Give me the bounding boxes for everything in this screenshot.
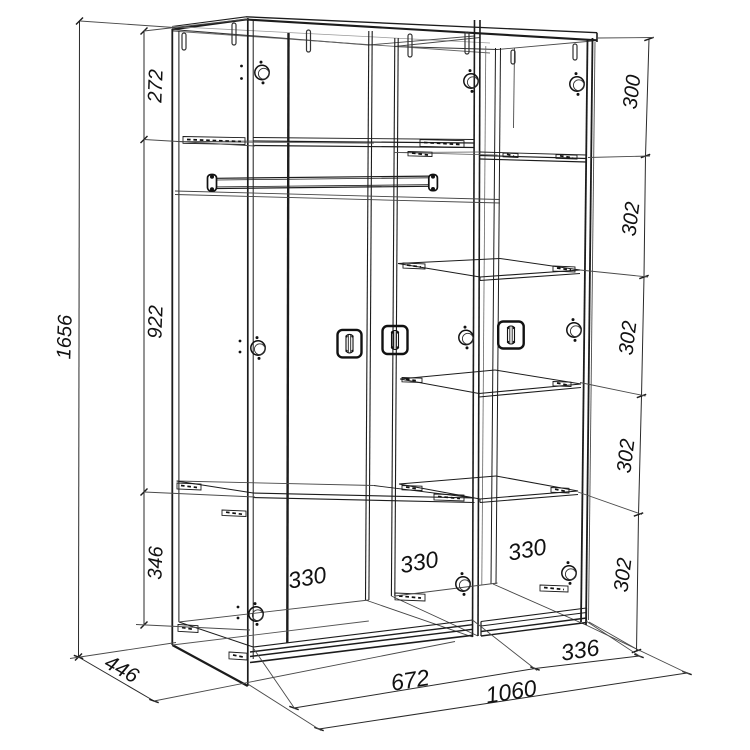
svg-text:302: 302 bbox=[618, 200, 645, 237]
svg-text:302: 302 bbox=[613, 437, 640, 474]
svg-text:1656: 1656 bbox=[53, 314, 77, 360]
svg-text:272: 272 bbox=[144, 69, 167, 104]
svg-text:302: 302 bbox=[615, 319, 642, 356]
svg-text:300: 300 bbox=[619, 73, 646, 110]
svg-text:922: 922 bbox=[144, 305, 167, 339]
svg-text:346: 346 bbox=[144, 545, 167, 580]
svg-text:302: 302 bbox=[610, 556, 637, 593]
